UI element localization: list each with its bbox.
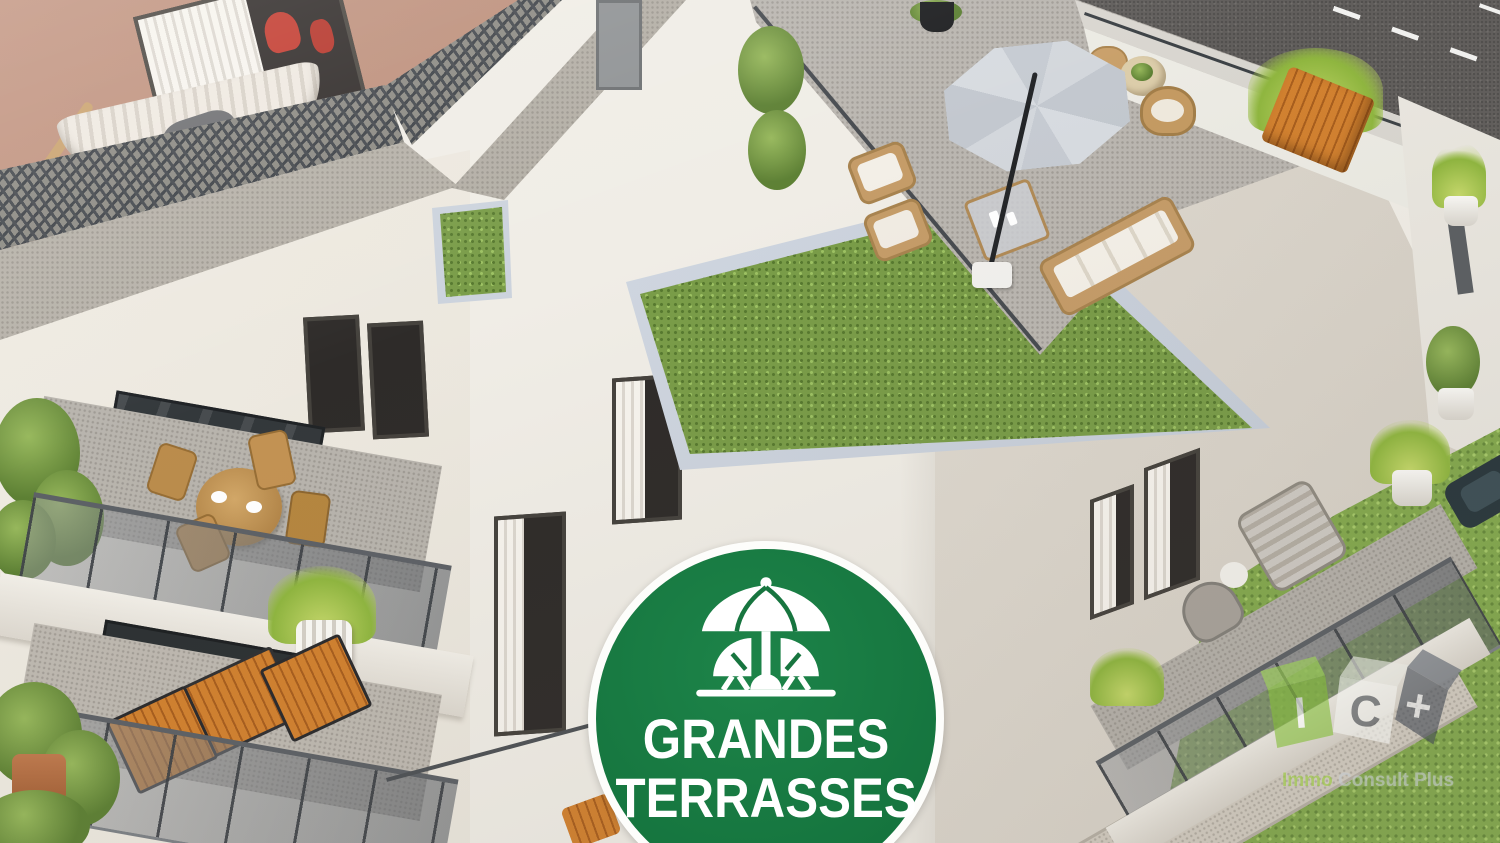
red-chair-reflection [307,17,337,55]
agency-name: Immo Consult Plus [1282,770,1454,792]
palm-plant [748,110,806,190]
agency-name-word2: Consult Plus [1338,770,1454,791]
parasol-base [972,262,1012,288]
cushion [872,208,920,250]
facade-window-lower [494,511,566,736]
table-plant [1131,63,1153,81]
promo-image: I C + Immo Consult Plus [0,0,1500,843]
agency-name-word1: Immo [1282,770,1333,791]
logo-cubes-icon: I C + [1258,630,1468,765]
car-roof [1458,468,1500,514]
left-window-pair [367,321,429,440]
right-edge-pot [1444,196,1478,226]
curtain [498,518,524,732]
red-parasol-reflection [260,8,303,55]
right-edge-pot [1438,388,1474,420]
dining-armchair [1140,86,1196,136]
balcony-plant-pot [1392,470,1432,506]
balcony-grass-plant [1090,648,1164,706]
right-face-window [1090,484,1134,620]
feature-badge: GRANDES TERRASSES [588,541,944,843]
candle [1006,211,1018,226]
black-plant-pot [920,2,954,32]
small-window-top [596,0,642,90]
curtain [1148,463,1170,595]
curtain [616,380,645,520]
curtain [1094,495,1116,615]
cushion [1151,99,1184,122]
badge-line1: GRANDES [643,709,889,768]
badge-line2: TERRASSES [615,768,916,827]
cushion [856,151,904,193]
plate [246,501,262,513]
agency-watermark: I C + Immo Consult Plus [1258,630,1488,810]
left-window-pair [303,315,365,434]
cube-letter-c: C [1348,686,1383,737]
terrace-parasol-icon [686,575,846,701]
plate [211,491,227,503]
palm-plant [738,26,804,114]
right-face-window [1144,448,1200,600]
